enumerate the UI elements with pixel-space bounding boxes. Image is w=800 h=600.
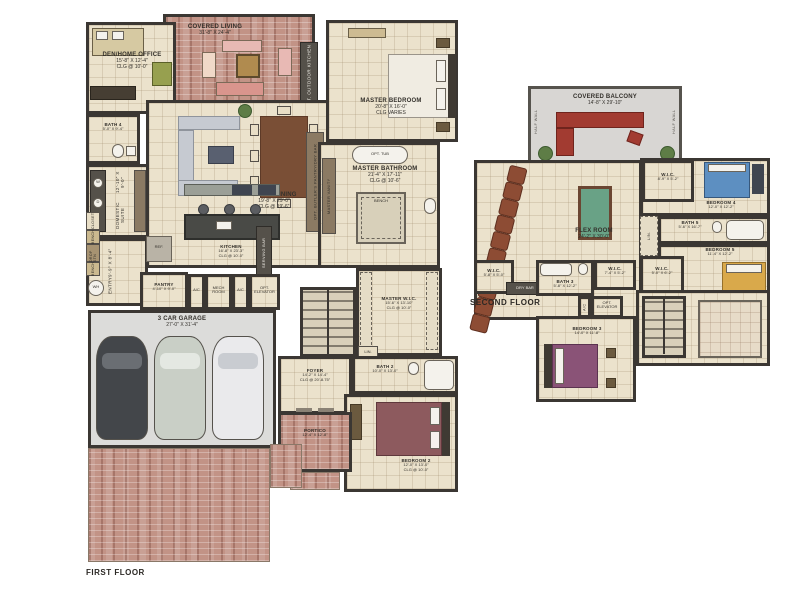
toilet-icon — [424, 198, 436, 214]
nightstand — [606, 378, 616, 388]
washer-label: W — [93, 180, 103, 184]
shower-bench-label: BENCH — [361, 199, 401, 203]
toilet-icon — [408, 362, 419, 375]
closet-rod — [426, 272, 438, 350]
pillow — [726, 264, 762, 273]
toilet-icon — [578, 263, 588, 275]
pillow — [436, 88, 446, 110]
balcony-sofa — [556, 128, 574, 156]
nightstand — [436, 122, 450, 132]
island-sink-icon — [216, 221, 232, 230]
sink-icon — [126, 146, 136, 156]
car-white — [212, 336, 264, 440]
toilet-icon — [712, 221, 722, 233]
stair-rail — [327, 290, 329, 354]
opt-tub-label: OPT. TUB — [352, 152, 408, 156]
armchair — [152, 62, 172, 86]
stair-rail — [663, 298, 665, 354]
room-dims: 9'-9" X 8'-4" — [108, 248, 113, 277]
oven-icon — [258, 185, 276, 195]
coffee-table — [208, 146, 234, 164]
outdoor-sofa — [222, 40, 262, 52]
car-windshield — [218, 353, 258, 369]
fire-table — [236, 54, 260, 78]
bathtub — [540, 263, 572, 276]
dining-chair — [250, 150, 259, 162]
plant-icon — [538, 146, 553, 161]
dresser — [752, 164, 764, 194]
closet-label: CLOSET — [86, 212, 100, 230]
drop-station-label: DROP STN — [86, 244, 100, 262]
room-wic-bedroom3 — [594, 260, 636, 290]
headboard — [544, 344, 552, 388]
pillow — [436, 60, 446, 82]
dining-chair — [277, 106, 291, 115]
first-floor-title: FIRST FLOOR — [86, 568, 145, 577]
linen-label: LIN. — [358, 350, 378, 354]
room-foyer — [278, 356, 352, 414]
desk — [90, 86, 136, 100]
open-to-below — [698, 300, 762, 358]
room-wic-bedroom4 — [642, 160, 694, 202]
room-name: ENTRY — [108, 277, 113, 294]
car-dark — [96, 336, 148, 440]
pillow — [555, 348, 564, 384]
pillow — [430, 407, 440, 425]
opt-elevator-label: OPT. ELEVATOR — [593, 301, 621, 310]
entry-label: ENTRY 9'-9" X 8'-4" — [102, 242, 118, 300]
bench-label: BENCH — [86, 262, 100, 276]
serving-bar-label: SERVING BAR — [256, 226, 272, 280]
floor-plan-image: COVERED LIVING 31'-8" X 24'-4" OPT. OUTD… — [0, 0, 800, 600]
room-wic-bedroom5 — [640, 256, 684, 294]
pillow — [112, 31, 124, 40]
bathtub — [726, 220, 764, 240]
car-windshield — [160, 353, 200, 369]
suite-counter — [134, 170, 146, 232]
cooktop-icon — [232, 185, 252, 195]
opt-elevator-label: OPT. ELEVATOR — [251, 286, 278, 295]
theater-seat — [469, 313, 491, 334]
nightstand — [606, 348, 616, 358]
ac-label: A/C — [578, 296, 591, 318]
closet-rod — [360, 272, 372, 350]
half-wall-label: HALF WALL — [669, 98, 679, 146]
toilet-icon — [112, 144, 124, 158]
room-name: DOMESTIC SUITE — [115, 197, 125, 234]
dining-chair — [277, 199, 291, 208]
refrigerator-label: REF. — [146, 245, 172, 249]
water-heater-label: WH — [88, 285, 104, 289]
pillow — [708, 164, 746, 172]
car-windshield — [102, 353, 142, 369]
dryer-label: D — [93, 200, 103, 204]
room-bath4 — [86, 114, 140, 164]
driveway — [88, 448, 270, 562]
master-vanity-label: MASTER VANITY — [322, 158, 336, 234]
car-silver — [154, 336, 206, 440]
room-pantry — [140, 272, 188, 310]
headboard — [448, 54, 456, 118]
headboard — [442, 402, 450, 456]
nightstand — [436, 38, 450, 48]
dining-chair — [250, 124, 259, 136]
linen-label: LIN. — [640, 216, 658, 256]
balcony-sofa — [556, 112, 644, 128]
bench-label: BENCH — [86, 230, 100, 244]
pillow — [430, 431, 440, 449]
bathtub — [424, 360, 454, 390]
plant-icon — [238, 104, 252, 118]
outdoor-sofa — [216, 82, 264, 96]
second-floor-title: SECOND FLOOR — [470, 298, 540, 307]
pool-table — [578, 186, 612, 240]
ac-label: A/C — [232, 288, 249, 292]
outdoor-chair — [278, 48, 292, 76]
mech-room-label: MECH ROOM — [206, 286, 231, 295]
ac-label: A/C — [188, 288, 205, 292]
outdoor-chair — [202, 52, 216, 78]
domestic-suite-label: DOMESTIC SUITE 12'-10" X 9'-0" — [108, 168, 132, 234]
room-dims: 12'-10" X 9'-0" — [115, 168, 125, 197]
pillow — [96, 31, 108, 40]
sofa-back — [178, 116, 240, 130]
walkway — [270, 444, 302, 488]
half-wall-label: HALF WALL — [531, 98, 541, 146]
bedroom-bench — [348, 28, 386, 38]
